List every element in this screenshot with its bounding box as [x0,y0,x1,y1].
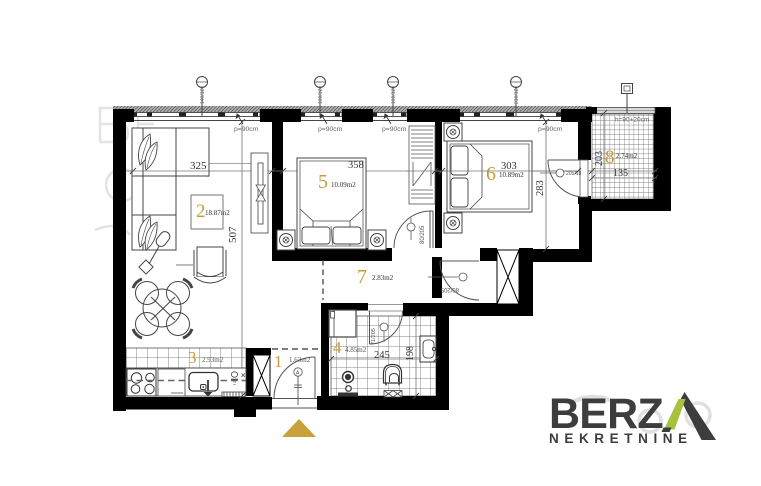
svg-text:1: 1 [274,352,283,371]
svg-text:507: 507 [227,226,239,243]
svg-text:135: 135 [613,168,628,179]
svg-text:10.89m2: 10.89m2 [499,171,524,179]
svg-text:71/205: 71/205 [371,328,377,345]
svg-text:10.09m2: 10.09m2 [331,181,356,189]
svg-text:p=90cm: p=90cm [538,126,563,133]
svg-text:100/120: 100/120 [318,86,324,104]
svg-text:2.93m2: 2.93m2 [202,356,224,364]
svg-text:283: 283 [535,180,546,196]
svg-text:140/120: 140/120 [200,86,206,104]
svg-text:A: A [296,370,300,376]
svg-text:3: 3 [188,348,197,367]
svg-text:8: 8 [605,147,615,168]
svg-text:p=90cm: p=90cm [382,126,407,133]
svg-text:80/205: 80/205 [420,225,426,244]
svg-text:2.83m2: 2.83m2 [372,274,394,282]
svg-text:2.74m2: 2.74m2 [616,152,638,160]
svg-text:198: 198 [405,346,416,361]
svg-text:NEKRETNINE: NEKRETNINE [549,431,693,446]
svg-text:210/120: 210/120 [514,86,520,104]
svg-text:205/18: 205/18 [566,171,582,177]
svg-text:80/205: 80/205 [440,286,459,292]
svg-text:p=90cm: p=90cm [234,126,259,133]
svg-text:100/120: 100/120 [391,86,397,104]
svg-text:h=90+20cm: h=90+20cm [615,117,649,124]
svg-text:4: 4 [333,338,342,357]
svg-text:p=90cm: p=90cm [318,126,343,133]
svg-text:5: 5 [318,171,328,193]
svg-text:7: 7 [357,266,367,288]
svg-text:203: 203 [594,151,605,166]
svg-text:245: 245 [374,350,390,361]
svg-text:303: 303 [501,161,517,172]
svg-text:358: 358 [348,160,364,171]
svg-text:18.87m2: 18.87m2 [205,209,230,217]
svg-text:325: 325 [190,160,207,172]
svg-text:6: 6 [486,163,496,185]
svg-text:4.85m2: 4.85m2 [345,346,367,354]
